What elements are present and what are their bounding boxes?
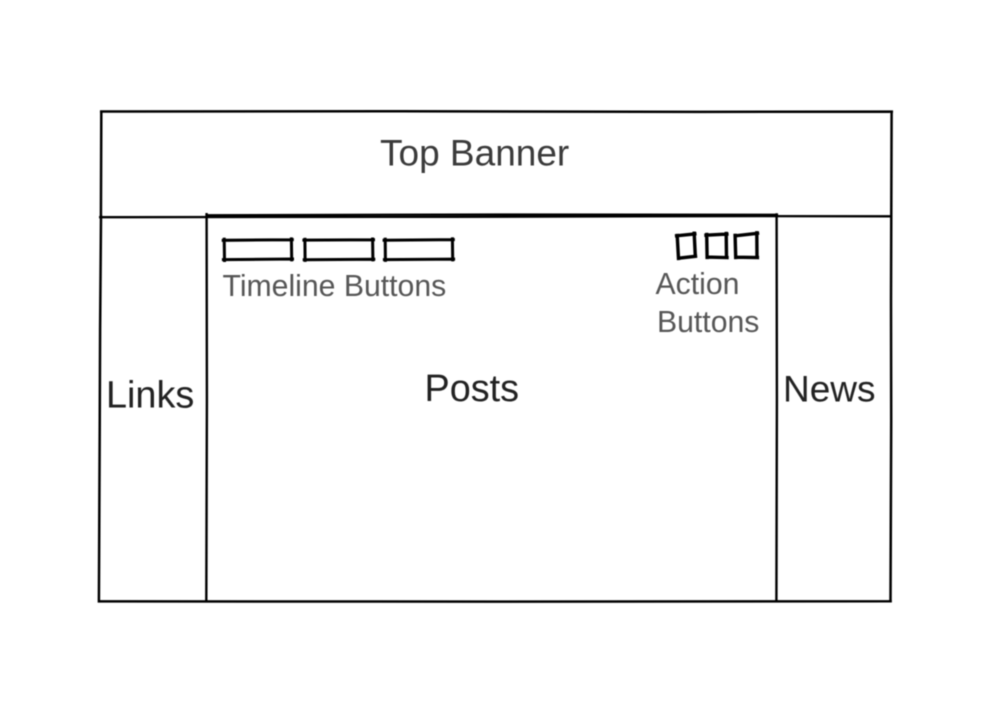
svg-text:Buttons: Buttons <box>657 306 759 339</box>
svg-text:Action: Action <box>656 268 740 301</box>
svg-text:Posts: Posts <box>425 368 520 410</box>
svg-text:Timeline Buttons: Timeline Buttons <box>223 270 447 303</box>
svg-text:News: News <box>783 368 876 409</box>
svg-text:Top Banner: Top Banner <box>380 133 569 174</box>
svg-text:Links: Links <box>106 375 194 417</box>
